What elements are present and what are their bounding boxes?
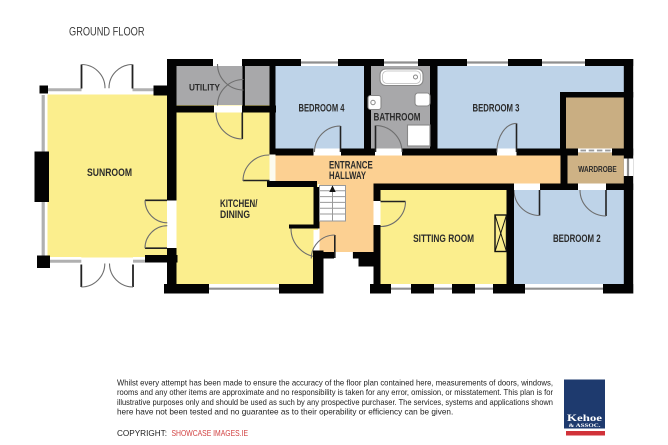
svg-text:BATHROOM: BATHROOM [374, 112, 421, 124]
svg-text:Whilst every attempt has been: Whilst every attempt has been made to en… [117, 379, 553, 388]
svg-text:illustrative purposes only and: illustrative purposes only and should be… [117, 398, 553, 407]
svg-text:DINING: DINING [220, 209, 250, 221]
svg-text:SHOWCASE IMAGES.IE: SHOWCASE IMAGES.IE [172, 429, 249, 438]
svg-text:SITTING ROOM: SITTING ROOM [413, 233, 474, 245]
svg-text:BEDROOM 4: BEDROOM 4 [299, 103, 345, 115]
svg-text:& ASSOC.: & ASSOC. [569, 424, 601, 429]
svg-text:WARDROBE: WARDROBE [578, 165, 617, 174]
svg-text:BEDROOM 2: BEDROOM 2 [553, 233, 601, 245]
svg-text:BEDROOM 3: BEDROOM 3 [473, 103, 520, 115]
svg-text:here have not been tested and: here have not been tested and no guarant… [117, 408, 453, 417]
svg-text:rooms and any other items are: rooms and any other items are approximat… [117, 388, 553, 397]
svg-text:GROUND FLOOR: GROUND FLOOR [69, 25, 145, 39]
svg-text:SUNROOM: SUNROOM [87, 167, 132, 179]
svg-text:COPYRIGHT:: COPYRIGHT: [117, 429, 167, 438]
svg-text:HALLWAY: HALLWAY [329, 170, 366, 182]
svg-text:Kehoe: Kehoe [567, 413, 603, 424]
svg-text:UTILITY: UTILITY [189, 82, 220, 92]
